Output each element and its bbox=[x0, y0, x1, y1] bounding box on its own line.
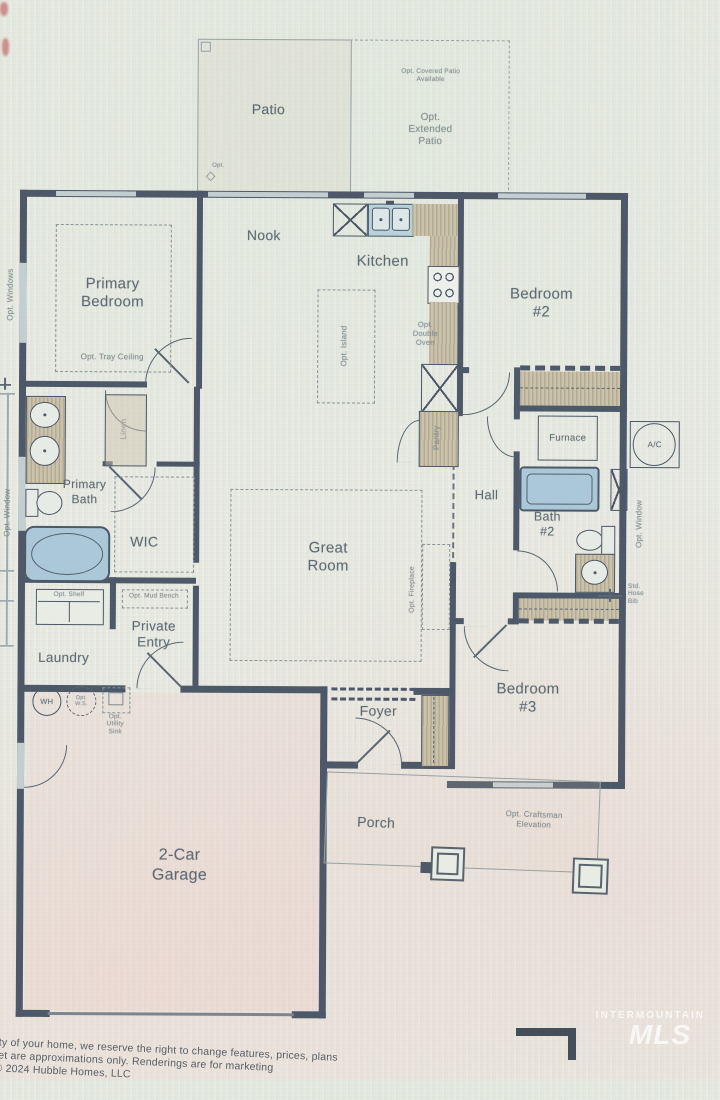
room-label-bedroom2: Bedroom #2 bbox=[496, 285, 586, 322]
wall-garage-bottom-right bbox=[292, 1011, 326, 1018]
porch-post-left bbox=[430, 846, 465, 881]
dishwasher bbox=[333, 203, 368, 236]
opt-double-oven-label: Opt. Double Oven bbox=[395, 320, 455, 348]
room-label-garage: 2-Car Garage bbox=[129, 845, 229, 885]
opt-oven-box bbox=[421, 364, 459, 413]
sink-faucet bbox=[386, 201, 394, 205]
porch-label: Porch bbox=[348, 813, 405, 832]
mls-watermark: INTERMOUNTAIN MLS bbox=[545, 1010, 705, 1051]
bed2-door-arc bbox=[463, 372, 510, 415]
bath2-toilet-bowl bbox=[576, 530, 603, 551]
foyer-archway-dash-2 bbox=[331, 697, 415, 700]
opt-island-label: Opt. Island bbox=[335, 296, 354, 396]
left-window-1 bbox=[19, 263, 26, 343]
photo-artifact-1 bbox=[0, 2, 8, 16]
wall-entry-garage-right bbox=[180, 686, 327, 694]
opt-water-softener-label: Opt. W.S. bbox=[75, 695, 87, 707]
room-label-private-entry: Private Entry bbox=[116, 618, 192, 651]
counter-corner bbox=[412, 204, 458, 236]
porch-outline: Porch Opt. Craftsman Elevation bbox=[324, 771, 601, 873]
furnace-label: Furnace bbox=[549, 432, 586, 444]
opt-fireplace-label: Opt. Fireplace bbox=[406, 548, 420, 632]
furnace-box: Furnace bbox=[538, 416, 598, 461]
opt-shelf-label: Opt. Shelf bbox=[36, 591, 102, 599]
opt-covered-patio-label: Opt. Covered Patio Available bbox=[389, 68, 473, 84]
wall-primary-bottom bbox=[19, 381, 147, 388]
wall-wic-top-b bbox=[157, 462, 200, 467]
bed3-door-arc bbox=[464, 626, 509, 671]
bath2-sink bbox=[581, 560, 608, 585]
bath2-door-arc bbox=[517, 550, 558, 591]
primary-tub bbox=[24, 526, 110, 582]
pantry-label: Pantry bbox=[427, 415, 447, 461]
room-label-primary-bedroom: Primary Bedroom bbox=[57, 275, 167, 312]
wall-primary-right bbox=[196, 191, 203, 389]
room-label-laundry: Laundry bbox=[25, 650, 103, 667]
opt-windows-left-label: Opt. Windows bbox=[3, 246, 18, 344]
wic-shelving bbox=[114, 476, 195, 572]
room-label-great-room: Great Room bbox=[286, 539, 370, 576]
sink-basin-left bbox=[372, 208, 390, 231]
bed3-closet-doors bbox=[519, 618, 619, 624]
room-label-hall: Hall bbox=[462, 487, 510, 503]
opt-tray-ceiling-label: Opt. Tray Ceiling bbox=[57, 352, 167, 362]
bath2-tub bbox=[519, 466, 599, 511]
wall-garage-bottom-left bbox=[16, 1010, 50, 1017]
room-label-primary-bath: Primary Bath bbox=[50, 477, 118, 507]
patio-corner-note: Opt. bbox=[206, 163, 230, 170]
opt-extended-patio-label: Opt. Extended Patio bbox=[395, 112, 465, 149]
patio-label: Patio bbox=[223, 101, 313, 119]
porch-post-right bbox=[572, 857, 609, 894]
primary-window bbox=[56, 191, 136, 196]
opt-water-softener: Opt. W.S. bbox=[66, 686, 96, 716]
pantry-door-arc bbox=[397, 420, 420, 463]
room-label-nook: Nook bbox=[238, 227, 290, 244]
bed2-window bbox=[498, 193, 586, 198]
kitchen-window bbox=[364, 193, 414, 198]
room-label-bath2: Bath #2 bbox=[521, 509, 573, 540]
porch-corner-block bbox=[420, 862, 431, 873]
opt-fireplace-box bbox=[422, 544, 450, 630]
foyer-archway-dash-1 bbox=[331, 687, 415, 690]
nook-patio-door bbox=[208, 192, 328, 198]
shelf-divider-v bbox=[69, 601, 70, 622]
vanity-sink-1 bbox=[30, 402, 60, 428]
counter-right-upper bbox=[430, 236, 458, 266]
water-heater: WH bbox=[32, 687, 61, 716]
opt-mud-bench-label: Opt. Mud Bench bbox=[120, 592, 188, 600]
cooktop bbox=[427, 266, 459, 304]
sink-basin-right bbox=[392, 208, 410, 231]
watermark-mls: MLS bbox=[545, 1019, 691, 1051]
photo-artifact-2 bbox=[2, 38, 9, 56]
hose-bib-tick bbox=[609, 589, 611, 602]
floor-plan: Patio Opt. Covered Patio Available Opt. … bbox=[0, 0, 720, 1083]
wall-greatroom-right bbox=[449, 562, 456, 769]
opt-utility-sink-basin bbox=[108, 692, 123, 705]
opt-window-left-label: Opt. Window bbox=[0, 468, 14, 558]
bed2-closet-doors bbox=[520, 365, 620, 371]
floorplan-photo: { "labels": { "patio": "Patio", "opt_cov… bbox=[0, 0, 720, 1080]
linen-closet bbox=[105, 394, 147, 466]
room-label-bedroom3: Bedroom #3 bbox=[485, 680, 570, 717]
wall-bed3-top-b bbox=[508, 618, 519, 624]
hose-bib-left-v bbox=[4, 378, 6, 390]
garage-door-line bbox=[48, 1012, 294, 1016]
bath2-toilet-tank bbox=[601, 526, 615, 555]
foyer-closet bbox=[421, 695, 449, 767]
room-label-foyer: Foyer bbox=[348, 703, 408, 720]
patio-corner-marker bbox=[201, 42, 211, 52]
opt-craftsman-label: Opt. Craftsman Elevation bbox=[476, 808, 592, 832]
ac-circle bbox=[633, 423, 676, 466]
opt-window-right-label: Opt. Window bbox=[632, 477, 646, 572]
hall-archway-dash bbox=[452, 454, 455, 558]
room-label-wic: WIC bbox=[112, 533, 176, 550]
vanity-sink-2 bbox=[30, 436, 60, 466]
room-label-kitchen: Kitchen bbox=[348, 253, 418, 272]
opt-utility-sink-label: Opt. Utility Sink bbox=[89, 713, 141, 736]
std-hose-bib-label: Std. Hose Bib bbox=[628, 583, 658, 606]
wall-wic-right-b bbox=[192, 586, 199, 689]
bath2-window bbox=[610, 469, 627, 511]
water-heater-label: WH bbox=[40, 697, 53, 706]
furnace-door-arc bbox=[487, 416, 516, 457]
wall-bed2-closet-front bbox=[514, 405, 627, 412]
